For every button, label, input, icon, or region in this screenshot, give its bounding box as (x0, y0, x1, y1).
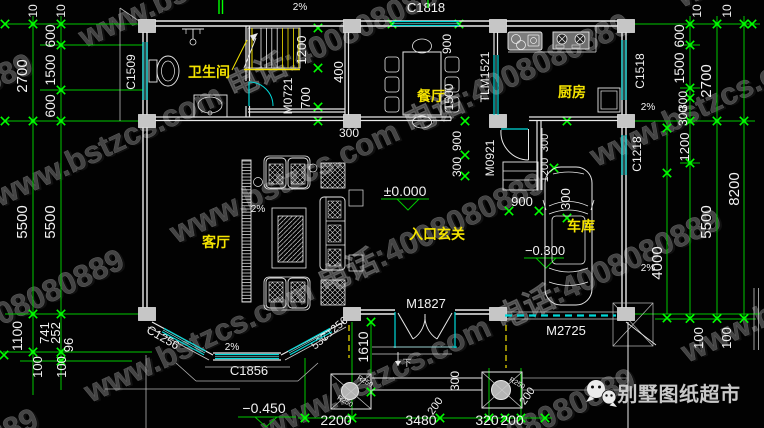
svg-text:320: 320 (475, 412, 499, 428)
svg-text:900: 900 (450, 131, 464, 151)
svg-text:400: 400 (331, 61, 346, 83)
svg-text:TLM1521: TLM1521 (478, 51, 492, 102)
svg-text:C1518: C1518 (633, 53, 647, 89)
svg-text:车库: 车库 (567, 218, 595, 234)
svg-text:10: 10 (690, 4, 704, 18)
svg-text:600: 600 (42, 24, 58, 48)
svg-text:700: 700 (298, 87, 313, 109)
svg-text:10: 10 (720, 4, 734, 18)
svg-text:1200: 1200 (294, 36, 309, 65)
svg-text:−0.450: −0.450 (242, 400, 285, 416)
svg-text:96: 96 (61, 338, 76, 352)
svg-text:餐厅: 餐厅 (416, 88, 445, 104)
svg-text:M1827: M1827 (406, 296, 446, 311)
svg-text:10: 10 (54, 4, 68, 18)
svg-text:客厅: 客厅 (201, 234, 230, 250)
svg-text:900: 900 (440, 34, 454, 54)
svg-text:别墅图纸超市: 别墅图纸超市 (617, 382, 741, 406)
svg-text:1500: 1500 (671, 52, 687, 83)
svg-text:600: 600 (42, 94, 58, 118)
svg-text:900: 900 (511, 194, 533, 209)
svg-text:100: 100 (719, 327, 734, 349)
svg-text:5500: 5500 (698, 205, 715, 238)
svg-text:M2725: M2725 (546, 323, 586, 338)
svg-text:2%: 2% (641, 263, 656, 274)
svg-text:厨房: 厨房 (558, 84, 586, 100)
svg-text:C1218: C1218 (630, 136, 644, 172)
svg-text:下: 下 (402, 358, 411, 368)
svg-text:300: 300 (450, 157, 464, 177)
svg-text:100: 100 (54, 356, 69, 378)
svg-text:1100: 1100 (9, 321, 25, 351)
svg-text:600: 600 (671, 24, 687, 48)
svg-text:1610: 1610 (355, 331, 371, 362)
svg-text:10: 10 (26, 4, 40, 18)
svg-text:100: 100 (30, 356, 45, 378)
svg-text:2%: 2% (251, 204, 266, 215)
svg-text:1200: 1200 (677, 133, 692, 162)
svg-text:100: 100 (691, 327, 706, 349)
svg-text:2%: 2% (641, 102, 656, 113)
svg-text:5500: 5500 (14, 205, 31, 238)
svg-text:2%: 2% (293, 2, 308, 13)
svg-text:入口玄关: 入口玄关 (409, 226, 465, 242)
svg-text:300: 300 (339, 126, 359, 140)
svg-text:C1856: C1856 (230, 363, 268, 378)
svg-text:2200: 2200 (320, 412, 351, 428)
svg-text:2700: 2700 (14, 59, 31, 92)
svg-text:300: 300 (676, 106, 690, 126)
svg-text:2%: 2% (225, 342, 240, 353)
svg-text:C1818: C1818 (407, 0, 445, 15)
svg-text:2700: 2700 (698, 64, 715, 97)
svg-text:±0.000: ±0.000 (384, 183, 427, 199)
svg-text:8200: 8200 (726, 172, 743, 205)
svg-text:C1509: C1509 (124, 54, 138, 90)
svg-text:1500: 1500 (42, 54, 58, 85)
svg-text:卫生间: 卫生间 (188, 64, 230, 80)
svg-text:300: 300 (558, 188, 573, 210)
svg-text:300: 300 (448, 371, 462, 391)
svg-text:5500: 5500 (42, 205, 59, 238)
svg-text:200: 200 (500, 412, 524, 428)
svg-text:M0921: M0921 (483, 139, 497, 176)
